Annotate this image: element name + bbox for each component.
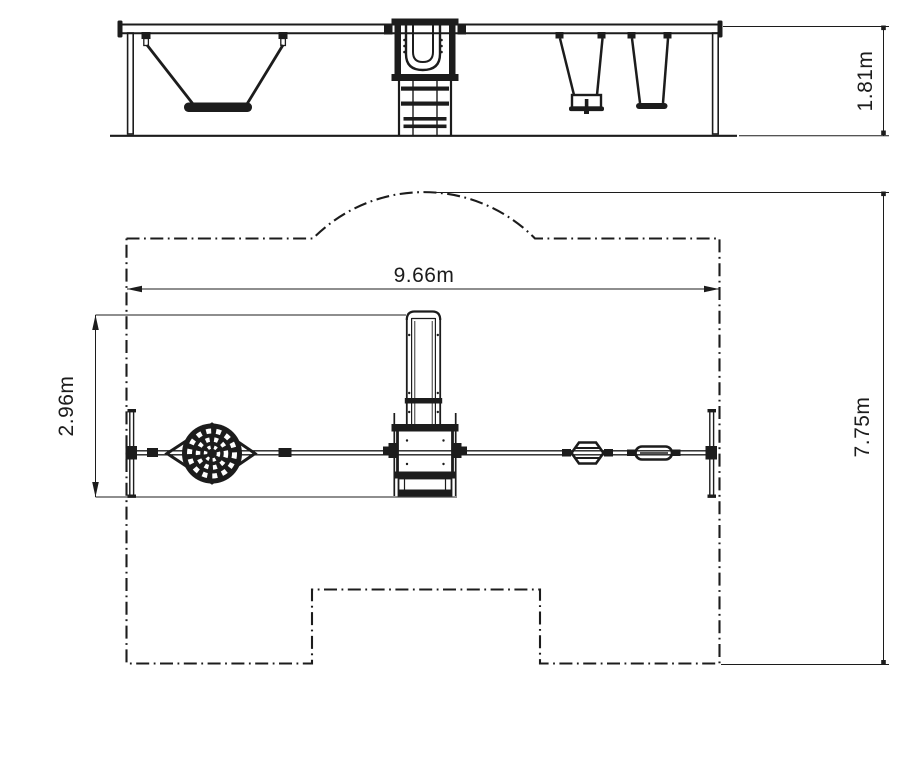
beam-clamp (452, 443, 462, 458)
toddler-seat-plan (562, 443, 613, 464)
beam-clamp (384, 26, 393, 35)
arrow-left-icon (127, 286, 142, 293)
beam-clamp (627, 450, 635, 457)
basket-swing-elevation (142, 32, 288, 112)
toddler-swing-elevation (556, 32, 606, 114)
dimension-frame-height: 1.81m (723, 26, 889, 136)
beam-clamp (458, 26, 467, 35)
basket-seat (184, 103, 252, 113)
basket-web (182, 424, 242, 484)
playground-drawing: 1.81m (0, 0, 924, 768)
slide-plan (405, 312, 442, 428)
beam-clamp (604, 449, 613, 457)
dimension-label-safety-depth: 7.75m (851, 397, 874, 458)
ladder-rung (401, 87, 449, 91)
swing-rope (247, 45, 283, 104)
beam-clamp (673, 450, 681, 457)
dimension-label-width: 9.66m (394, 264, 455, 287)
swing-hanger-icon (556, 32, 564, 39)
swing-rope (632, 39, 640, 104)
arrow-right-icon (704, 286, 719, 293)
dimension-label-height: 1.81m (854, 51, 877, 112)
dimension-frame-width: 9.66m (127, 264, 719, 292)
ladder-rung (404, 117, 447, 121)
dimension-safety-depth: 7.75m (428, 192, 889, 665)
frame-post-right-plan (706, 409, 718, 498)
swing-rope (560, 39, 574, 96)
swing-rope (147, 45, 193, 104)
frame-post-right (713, 33, 719, 134)
beam-clamp (562, 449, 571, 457)
slide-tower-elevation (384, 19, 466, 136)
ladder-elevation (399, 81, 451, 135)
beam-end-cap-left (118, 21, 123, 38)
front-elevation-view (110, 19, 737, 136)
belt-swing-elevation (628, 32, 672, 109)
frame-post-left (128, 33, 134, 134)
ladder-rung (404, 125, 447, 129)
belt-seat (636, 103, 668, 109)
slide-flange-bolts (403, 39, 443, 54)
basket-swing-plan (147, 424, 292, 484)
belt-seat-plan (627, 447, 681, 460)
arrow-up-icon (92, 315, 99, 330)
beam-clamp (389, 443, 399, 458)
platform-edge (392, 74, 459, 81)
ladder-plan (399, 479, 452, 497)
swing-hanger-icon (628, 32, 636, 39)
slide-cross-section (406, 25, 440, 70)
ladder-rung (401, 102, 449, 106)
arrow-down-icon (92, 482, 99, 497)
swing-hanger-icon (664, 32, 672, 39)
beam-clamp (147, 448, 158, 457)
swing-rope (597, 39, 603, 96)
swing-rope (663, 39, 668, 104)
slide-tower-plan (383, 312, 467, 497)
beam-hub (126, 446, 138, 460)
beam-clamp (279, 448, 292, 457)
platform-screws (406, 439, 445, 465)
swing-hanger-icon (598, 32, 606, 39)
slide-cross-section-inner (413, 25, 433, 62)
plan-view: 9.66m 2.96m 7.75m (55, 192, 889, 665)
technical-drawing-page: 1.81m (0, 0, 924, 768)
slide-joint (405, 398, 442, 404)
beam-hub (706, 446, 718, 460)
dimension-label-unit-depth: 2.96m (55, 376, 78, 437)
